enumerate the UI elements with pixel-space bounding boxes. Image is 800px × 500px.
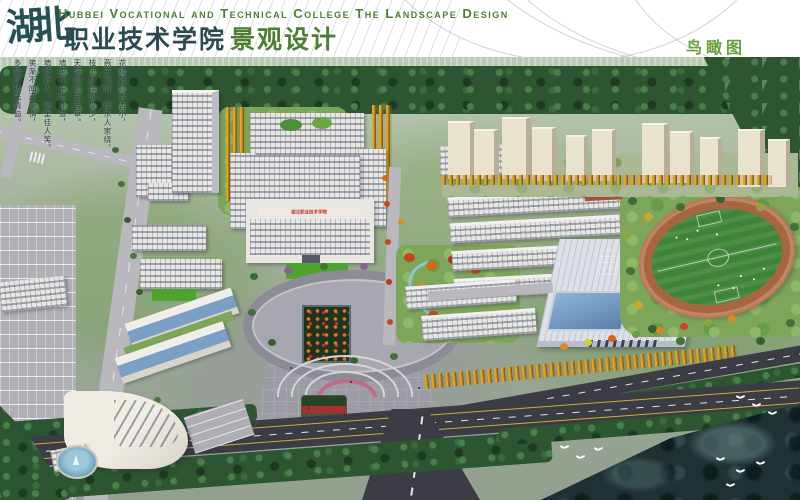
building-banner: 湖北职业技术学院 xyxy=(258,207,360,216)
college-logo: 湖北 xyxy=(4,0,66,54)
residential-tower xyxy=(592,129,616,181)
egret xyxy=(726,483,734,487)
poem-line: 笑渐不闻声渐悄， xyxy=(27,59,38,171)
birdseye-view-label: 鸟瞰图 xyxy=(686,34,746,57)
main-entrance xyxy=(302,255,320,263)
egret xyxy=(752,403,760,407)
autumn-tree-canopy xyxy=(404,253,415,262)
poem-line: 墙外行人，墙里佳人笑。 xyxy=(42,59,53,171)
egret xyxy=(594,447,602,451)
egret xyxy=(716,457,724,461)
campus-aerial-rendering: 湖北职业技术学院 xyxy=(0,57,800,500)
residential-tower xyxy=(502,117,531,179)
poplar-fence-residential xyxy=(442,175,772,185)
teaching-building-nw1 xyxy=(132,225,206,251)
amphitheater-steps xyxy=(277,355,413,397)
banner-text: 湖北职业技术学院 xyxy=(291,208,327,215)
street-trees-southeast xyxy=(560,343,568,350)
poem-line: 枝上柳绵吹又少， xyxy=(87,59,98,171)
poem-line: 燕子飞时，绿水人家绕。 xyxy=(102,59,113,171)
gym-arcade xyxy=(589,340,660,347)
title-college: 职业技术学院 xyxy=(64,25,226,54)
residential-tower xyxy=(448,121,475,179)
admin-main-building: 湖北职业技术学院 xyxy=(246,199,374,263)
library-tower xyxy=(172,90,219,193)
pedestrians xyxy=(290,367,292,369)
title-bar: 湖北 Hubbei Vocational and Technical Colle… xyxy=(0,0,800,57)
poem-line: 多情却被无情恼。 xyxy=(12,59,23,171)
fountain-pond xyxy=(56,445,98,479)
egret xyxy=(756,461,764,465)
egret xyxy=(736,395,744,399)
teaching-block-middle xyxy=(254,155,360,199)
gym-glass-roof xyxy=(546,291,631,331)
residential-tower xyxy=(474,129,499,179)
residential-tower xyxy=(532,127,557,181)
egret xyxy=(736,469,744,473)
poem-line: 墙里秋千墙外道， xyxy=(57,59,68,171)
plaza-tree-ring xyxy=(250,273,258,280)
poem-line: 天涯何处无芳草。 xyxy=(72,59,83,171)
fountain-sculpture xyxy=(73,455,79,465)
poem-inscription: 花褪残红青杏小， 燕子飞时，绿水人家绕。 枝上柳绵吹又少， 天涯何处无芳草。 墙… xyxy=(12,59,128,171)
egret xyxy=(768,411,776,415)
title-chinese: 职业技术学院景观设计 xyxy=(64,20,338,56)
autumn-street-trees xyxy=(382,175,388,181)
residential-tower xyxy=(642,123,669,183)
courtyard-lawn xyxy=(152,289,196,301)
egret xyxy=(576,455,584,459)
teaching-building-nw2 xyxy=(140,259,222,289)
residential-district xyxy=(442,119,800,237)
title-design: 景观设计 xyxy=(230,25,338,54)
egret xyxy=(560,445,568,449)
title-english: Hubbei Vocational and Technical College … xyxy=(58,6,509,21)
teaching-block-north xyxy=(250,113,364,155)
poem-line: 花褪残红青杏小， xyxy=(117,59,128,171)
